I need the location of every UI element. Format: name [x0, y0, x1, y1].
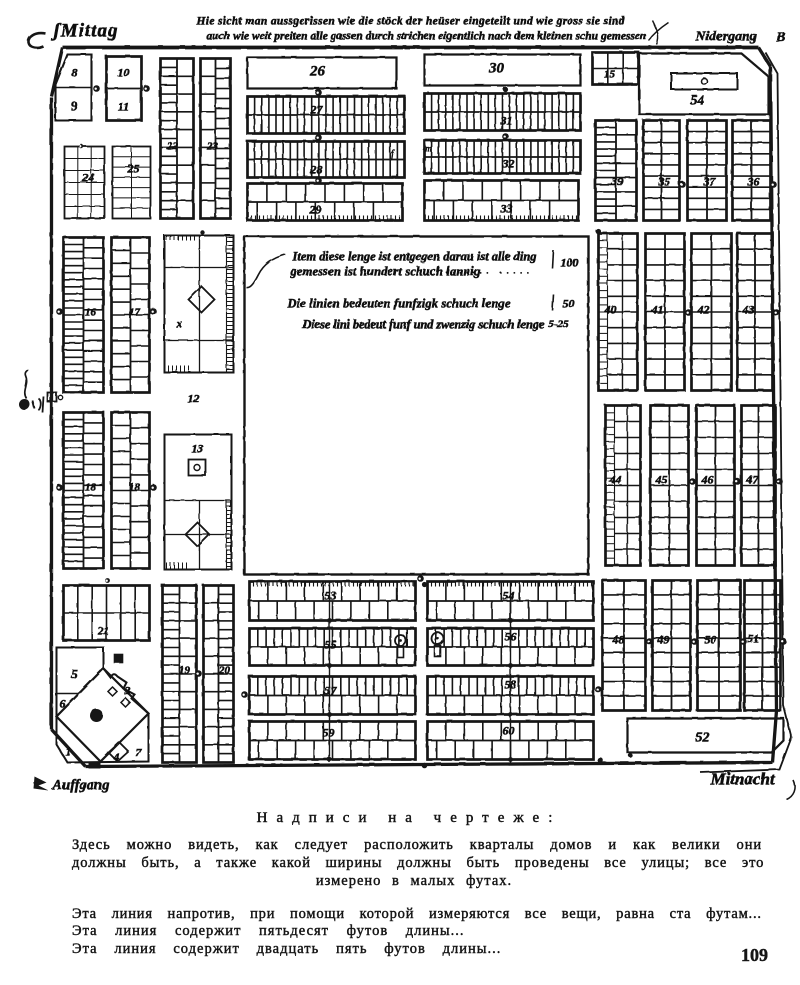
svg-text:1: 1: [65, 744, 71, 758]
svg-text:50: 50: [562, 296, 574, 310]
svg-text:B: B: [775, 30, 785, 45]
svg-text:25: 25: [126, 161, 139, 175]
svg-text:Diese lini bedeut funf und zwe: Diese lini bedeut funf und zwenzig schuc…: [301, 317, 544, 331]
svg-text:Die linien bedeuten funfzigk s: Die linien bedeuten funfzigk schuch leng…: [286, 296, 510, 310]
svg-text:7: 7: [135, 745, 142, 759]
svg-text:31: 31: [499, 113, 512, 127]
svg-text:24: 24: [81, 170, 94, 184]
svg-text:37: 37: [702, 174, 716, 188]
svg-text:22: 22: [166, 140, 179, 152]
svg-text:55: 55: [324, 637, 336, 651]
svg-text:28: 28: [309, 162, 322, 176]
svg-text:54: 54: [690, 93, 704, 108]
svg-text:35: 35: [657, 174, 670, 188]
svg-text:52: 52: [695, 730, 709, 745]
svg-text:4: 4: [112, 751, 119, 763]
svg-text:23: 23: [206, 140, 219, 152]
svg-text:57: 57: [324, 683, 337, 697]
svg-text:59: 59: [322, 725, 334, 739]
svg-text:15: 15: [604, 68, 616, 80]
svg-text:21: 21: [97, 625, 109, 637]
svg-text:Nidergang: Nidergang: [694, 29, 756, 44]
svg-text:18: 18: [85, 481, 97, 493]
svg-text:....... .....: ....... .....: [445, 264, 533, 276]
svg-text:47: 47: [745, 472, 759, 486]
svg-text:42: 42: [696, 302, 709, 316]
svg-text:19: 19: [179, 664, 191, 676]
svg-text:26: 26: [309, 63, 326, 79]
svg-text:Auffgang: Auffgang: [51, 777, 109, 793]
svg-text:32: 32: [501, 156, 514, 170]
svg-text:43: 43: [741, 302, 754, 316]
svg-text:41: 41: [650, 302, 663, 316]
svg-text:6: 6: [59, 696, 65, 710]
svg-text:27: 27: [309, 102, 323, 116]
svg-text:11: 11: [117, 99, 128, 113]
svg-text:5: 5: [71, 666, 78, 681]
svg-text:50: 50: [704, 632, 716, 646]
svg-text:39: 39: [610, 174, 623, 188]
svg-text:3: 3: [123, 683, 130, 697]
svg-text:36: 36: [746, 174, 759, 188]
svg-text:16: 16: [85, 306, 97, 318]
svg-text:51: 51: [747, 631, 759, 645]
svg-text:44: 44: [608, 472, 621, 486]
svg-text:46: 46: [700, 472, 713, 486]
svg-text:Hie sicht man aussgerissen wie: Hie sicht man aussgerissen wie die stöck…: [195, 15, 624, 27]
svg-text:x: x: [175, 316, 182, 330]
svg-text:17: 17: [129, 306, 141, 318]
svg-text:10: 10: [117, 65, 129, 79]
svg-text:40: 40: [603, 302, 616, 316]
svg-text:100: 100: [560, 255, 578, 269]
svg-text:53: 53: [324, 588, 336, 602]
svg-text:30: 30: [488, 60, 505, 76]
svg-text:18: 18: [129, 481, 141, 493]
svg-text:9: 9: [71, 98, 78, 113]
svg-text:Mitnacht: Mitnacht: [709, 769, 776, 788]
svg-text:12: 12: [187, 391, 199, 405]
svg-text:60: 60: [502, 723, 514, 737]
svg-text:5-25: 5-25: [548, 318, 569, 330]
svg-text:13: 13: [191, 441, 203, 455]
svg-text:m: m: [425, 143, 432, 153]
svg-text:8: 8: [71, 65, 77, 79]
svg-text:48: 48: [611, 632, 624, 646]
svg-text:33: 33: [499, 201, 512, 215]
svg-text:29: 29: [308, 202, 321, 216]
svg-text:auch wie weit preiten alle gas: auch wie weit preiten alle gassen durch …: [206, 30, 646, 42]
svg-text:Item diese lenge ist entgegen: Item diese lenge ist entgegen darau ist …: [291, 249, 536, 263]
svg-text:ʃMittag: ʃMittag: [50, 20, 118, 41]
svg-text:54: 54: [502, 588, 514, 602]
svg-text:49: 49: [656, 632, 669, 646]
svg-text:45: 45: [654, 472, 667, 486]
svg-text:20: 20: [218, 664, 231, 676]
